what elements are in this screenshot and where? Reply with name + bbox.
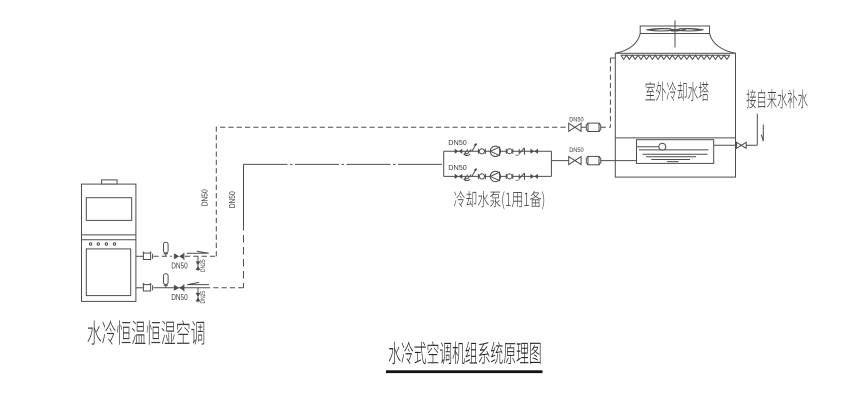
svg-text:DN50: DN50 (569, 147, 584, 154)
svg-text:DN50: DN50 (201, 189, 210, 206)
svg-text:DN50: DN50 (569, 117, 584, 124)
svg-text:DN50: DN50 (228, 191, 237, 208)
